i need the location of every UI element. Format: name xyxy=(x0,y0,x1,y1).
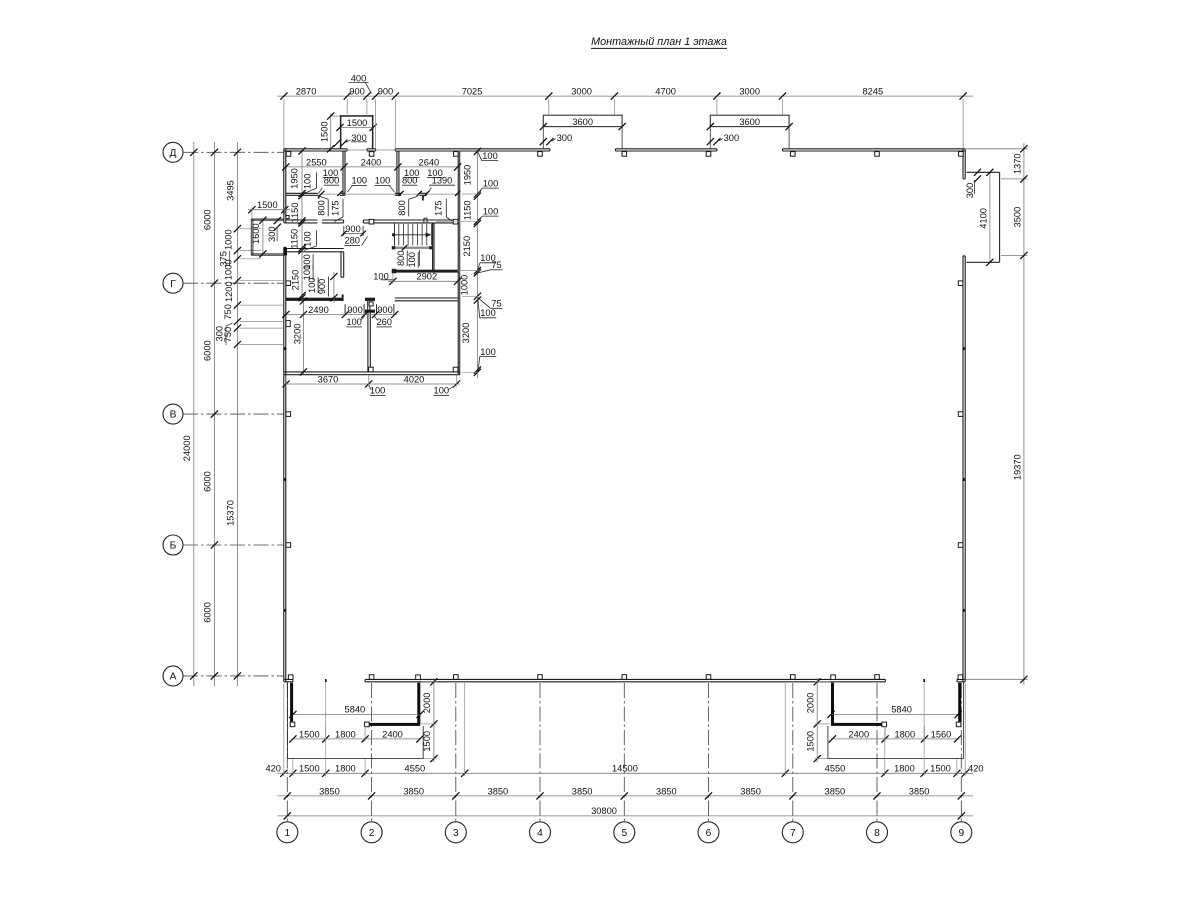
svg-text:1500: 1500 xyxy=(930,764,951,774)
svg-text:1800: 1800 xyxy=(335,729,356,739)
svg-text:1500: 1500 xyxy=(299,729,320,739)
svg-text:300: 300 xyxy=(267,226,277,242)
svg-text:2: 2 xyxy=(369,828,375,839)
svg-text:100: 100 xyxy=(407,252,417,268)
svg-text:2400: 2400 xyxy=(361,157,382,167)
svg-text:3850: 3850 xyxy=(488,786,509,796)
svg-text:1000: 1000 xyxy=(460,275,470,296)
svg-text:Б: Б xyxy=(170,541,177,552)
svg-text:1600: 1600 xyxy=(251,223,261,244)
svg-text:800: 800 xyxy=(402,175,418,185)
svg-text:1500: 1500 xyxy=(805,731,815,752)
svg-text:3670: 3670 xyxy=(318,374,339,384)
svg-text:1950: 1950 xyxy=(290,168,300,189)
svg-text:1800: 1800 xyxy=(335,764,356,774)
svg-text:2400: 2400 xyxy=(848,729,869,739)
svg-text:750: 750 xyxy=(223,327,233,343)
svg-text:1000: 1000 xyxy=(224,229,234,250)
svg-text:3600: 3600 xyxy=(572,117,593,127)
svg-text:280: 280 xyxy=(344,236,360,246)
svg-text:9: 9 xyxy=(958,828,964,839)
svg-text:260: 260 xyxy=(376,317,392,327)
svg-text:100: 100 xyxy=(375,176,391,186)
svg-text:5840: 5840 xyxy=(891,705,912,715)
svg-text:4700: 4700 xyxy=(655,86,676,96)
svg-text:400: 400 xyxy=(351,74,367,84)
svg-text:6000: 6000 xyxy=(203,340,213,361)
svg-text:100: 100 xyxy=(370,386,386,396)
svg-text:Монтажный план 1 этажа: Монтажный план 1 этажа xyxy=(591,36,727,48)
svg-text:3500: 3500 xyxy=(1012,207,1022,228)
svg-text:3850: 3850 xyxy=(572,786,593,796)
svg-text:900: 900 xyxy=(377,305,393,315)
svg-text:В: В xyxy=(170,410,177,421)
svg-text:100: 100 xyxy=(434,386,450,396)
svg-text:3850: 3850 xyxy=(909,786,930,796)
svg-text:1370: 1370 xyxy=(1012,153,1022,174)
svg-text:800: 800 xyxy=(317,200,327,216)
svg-text:1800: 1800 xyxy=(894,764,915,774)
svg-text:1150: 1150 xyxy=(289,229,299,249)
svg-text:1500: 1500 xyxy=(319,121,329,142)
svg-text:15370: 15370 xyxy=(226,500,236,526)
svg-text:3850: 3850 xyxy=(740,786,761,796)
svg-text:4020: 4020 xyxy=(404,374,425,384)
svg-text:900: 900 xyxy=(347,305,363,315)
svg-text:1: 1 xyxy=(284,828,290,839)
svg-text:1390: 1390 xyxy=(432,175,453,185)
svg-text:3850: 3850 xyxy=(825,786,846,796)
svg-text:900: 900 xyxy=(317,279,327,295)
svg-text:5: 5 xyxy=(621,828,627,839)
svg-text:900: 900 xyxy=(349,86,365,96)
svg-text:2640: 2640 xyxy=(419,157,440,167)
svg-text:300: 300 xyxy=(965,183,975,199)
svg-text:4550: 4550 xyxy=(825,764,846,774)
svg-text:А: А xyxy=(170,672,177,683)
svg-text:300: 300 xyxy=(557,133,573,143)
svg-text:3200: 3200 xyxy=(292,324,302,345)
svg-text:3495: 3495 xyxy=(226,180,236,201)
svg-text:3000: 3000 xyxy=(571,86,592,96)
svg-text:2400: 2400 xyxy=(382,729,403,739)
svg-text:5840: 5840 xyxy=(345,705,366,715)
svg-text:100: 100 xyxy=(483,178,499,188)
svg-text:19370: 19370 xyxy=(1012,454,1022,480)
svg-text:8: 8 xyxy=(874,828,880,839)
svg-text:3850: 3850 xyxy=(319,786,340,796)
svg-text:6: 6 xyxy=(706,828,712,839)
svg-text:3850: 3850 xyxy=(403,786,424,796)
svg-text:4: 4 xyxy=(537,828,543,839)
svg-text:Г: Г xyxy=(170,279,176,290)
svg-text:100: 100 xyxy=(346,317,362,327)
svg-text:7: 7 xyxy=(790,828,796,839)
svg-text:420: 420 xyxy=(968,764,984,774)
svg-text:1500: 1500 xyxy=(299,764,320,774)
svg-text:100: 100 xyxy=(482,151,498,161)
svg-text:2870: 2870 xyxy=(296,86,317,96)
svg-text:100: 100 xyxy=(483,206,499,216)
svg-text:6000: 6000 xyxy=(203,602,213,623)
svg-text:4100: 4100 xyxy=(978,208,988,229)
svg-text:100: 100 xyxy=(373,272,389,282)
svg-text:3000: 3000 xyxy=(739,86,760,96)
svg-text:1500: 1500 xyxy=(257,200,278,210)
svg-text:6000: 6000 xyxy=(203,471,213,492)
svg-text:100: 100 xyxy=(480,347,496,357)
svg-text:1800: 1800 xyxy=(894,729,915,739)
svg-text:2902: 2902 xyxy=(416,272,437,282)
svg-text:6000: 6000 xyxy=(203,209,213,230)
svg-text:3850: 3850 xyxy=(656,786,677,796)
svg-text:100: 100 xyxy=(352,176,368,186)
svg-text:1200: 1200 xyxy=(224,281,234,302)
svg-text:30800: 30800 xyxy=(591,806,617,816)
svg-text:900: 900 xyxy=(378,86,394,96)
svg-text:3: 3 xyxy=(453,828,459,839)
svg-text:1150: 1150 xyxy=(462,200,472,220)
svg-text:1500: 1500 xyxy=(347,118,368,128)
svg-text:75: 75 xyxy=(491,299,501,309)
svg-text:1150: 1150 xyxy=(290,203,300,223)
svg-text:175: 175 xyxy=(434,200,444,216)
svg-text:100: 100 xyxy=(480,308,496,318)
svg-text:2150: 2150 xyxy=(462,236,472,257)
svg-text:1000: 1000 xyxy=(224,259,234,280)
svg-text:100: 100 xyxy=(303,231,313,247)
svg-text:14500: 14500 xyxy=(612,764,638,774)
svg-text:3600: 3600 xyxy=(739,117,760,127)
svg-text:2150: 2150 xyxy=(290,270,300,291)
svg-text:7025: 7025 xyxy=(462,86,483,96)
svg-text:420: 420 xyxy=(265,764,281,774)
svg-text:750: 750 xyxy=(223,304,233,320)
svg-text:175: 175 xyxy=(330,200,340,216)
svg-text:300: 300 xyxy=(724,133,740,143)
svg-text:4550: 4550 xyxy=(405,764,426,774)
svg-text:Д: Д xyxy=(170,148,177,159)
svg-text:1500: 1500 xyxy=(422,731,432,752)
svg-text:8245: 8245 xyxy=(862,86,883,96)
svg-text:2000: 2000 xyxy=(422,693,432,714)
svg-text:800: 800 xyxy=(397,200,407,216)
svg-text:2490: 2490 xyxy=(308,305,329,315)
svg-text:100: 100 xyxy=(303,174,313,190)
svg-text:75: 75 xyxy=(491,260,501,270)
svg-text:24000: 24000 xyxy=(182,435,192,461)
svg-text:2000: 2000 xyxy=(805,693,815,714)
svg-text:3200: 3200 xyxy=(461,323,471,344)
svg-text:800: 800 xyxy=(396,251,406,267)
svg-text:2550: 2550 xyxy=(306,157,327,167)
svg-text:1560: 1560 xyxy=(931,729,952,739)
svg-text:900: 900 xyxy=(345,224,361,234)
svg-text:800: 800 xyxy=(324,175,340,185)
svg-text:1950: 1950 xyxy=(462,165,472,186)
svg-text:100: 100 xyxy=(307,277,317,293)
